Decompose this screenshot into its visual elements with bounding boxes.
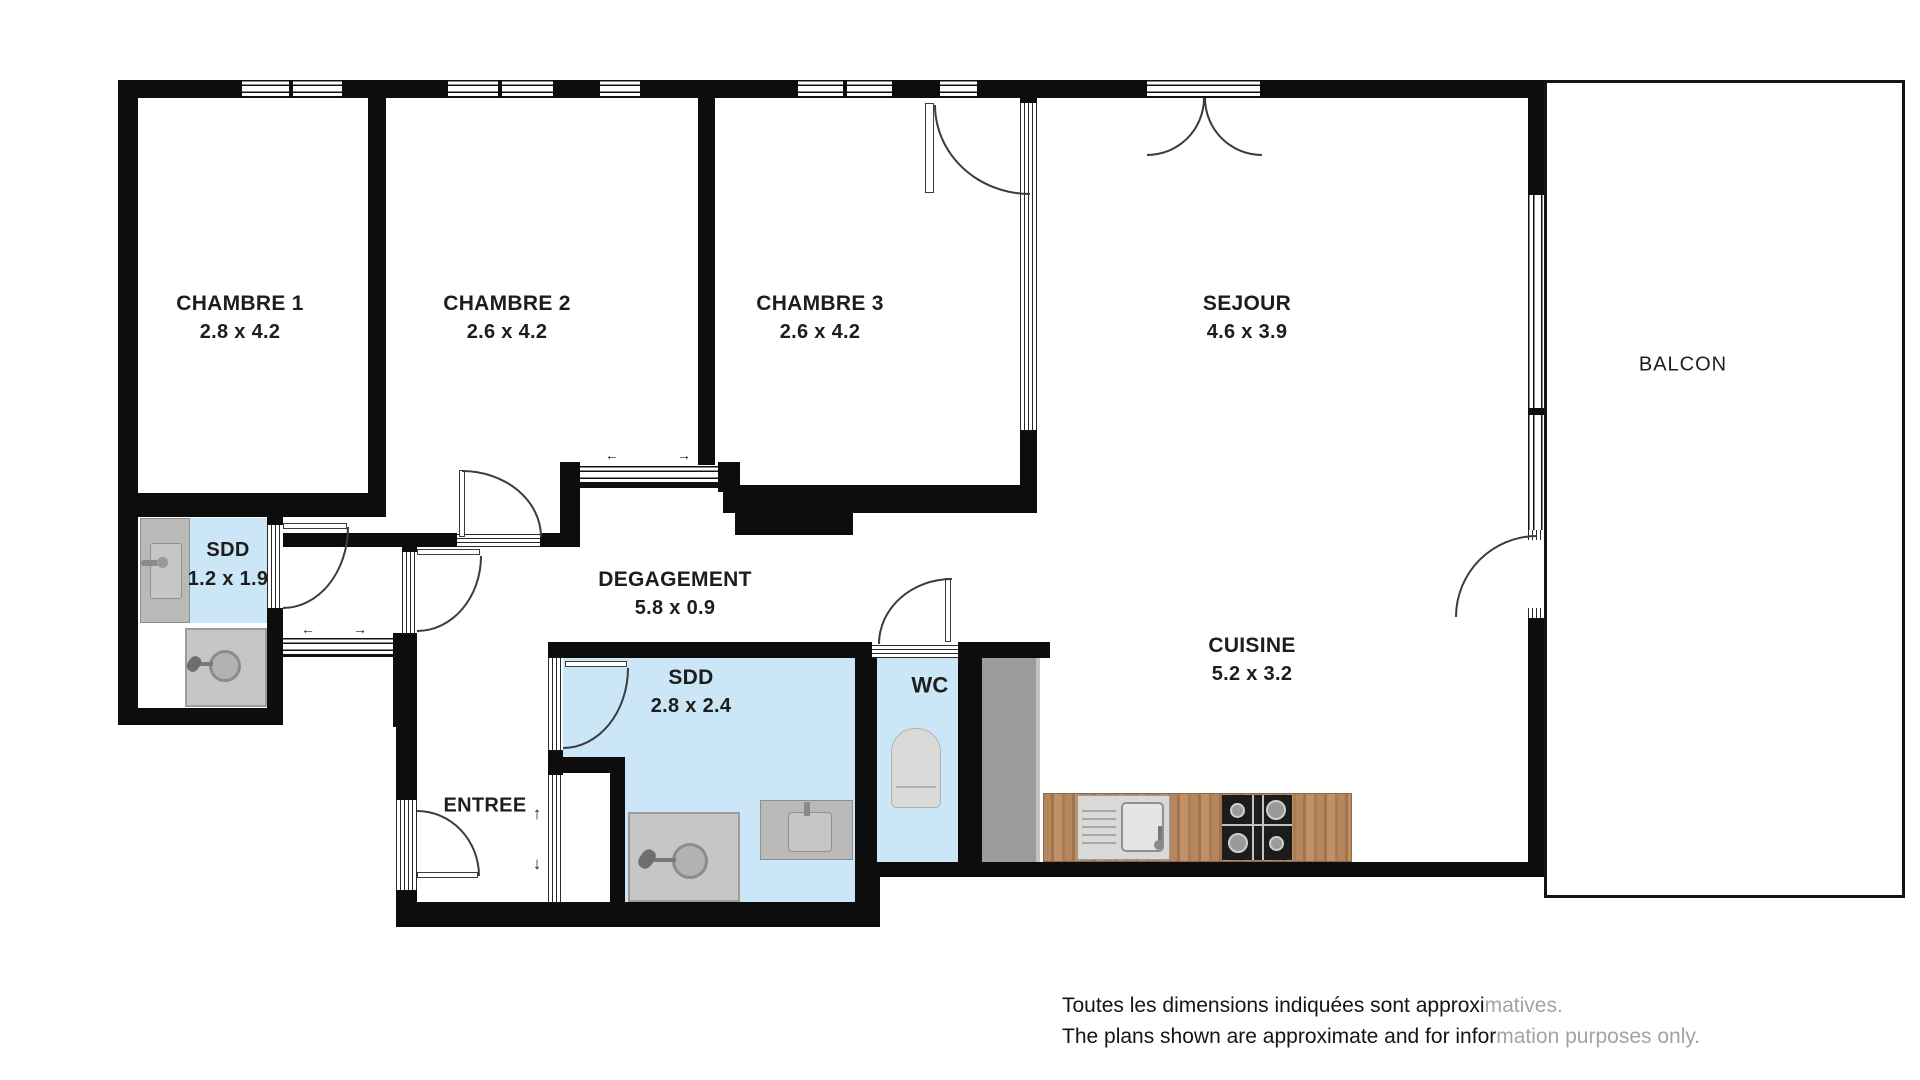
- floor-plan: ← → ← → ↑ ↓: [0, 0, 1920, 1080]
- stove-burner: [1230, 803, 1245, 818]
- sink-drainboard: [1082, 805, 1116, 850]
- room-label-entree: ENTREE: [444, 792, 527, 821]
- room-name: CUISINE: [1208, 631, 1295, 660]
- door-swing: [1455, 535, 1537, 617]
- slide-arrow-right-icon: →: [677, 447, 691, 463]
- room-name: SDD: [651, 663, 732, 692]
- wall: [396, 902, 880, 927]
- wall: [548, 642, 872, 658]
- door-swing: [1204, 98, 1262, 156]
- room-dims: 5.2 x 3.2: [1208, 660, 1295, 689]
- room-name: SDD: [188, 536, 269, 565]
- room-name: CHAMBRE 1: [176, 289, 304, 318]
- wall: [118, 493, 386, 517]
- wall: [560, 462, 580, 547]
- room-label-degagement: DEGAGEMENT 5.8 x 0.9: [598, 565, 752, 623]
- door-swing: [934, 105, 1030, 195]
- door-frame: [267, 525, 283, 608]
- slide-arrow-left-icon: ←: [301, 621, 315, 637]
- room-label-sdd-large: SDD 2.8 x 2.4: [651, 663, 732, 721]
- wall: [548, 750, 563, 775]
- room-label-cuisine: CUISINE 5.2 x 3.2: [1208, 631, 1295, 689]
- door-leaf: [417, 549, 480, 555]
- wall: [958, 658, 982, 862]
- shower-drain: [209, 650, 241, 682]
- window-mullion: [289, 80, 293, 98]
- room-label-sejour: SEJOUR 4.6 x 3.9: [1203, 289, 1291, 347]
- room-name: CHAMBRE 2: [443, 289, 571, 318]
- room-name: DEGAGEMENT: [598, 565, 752, 594]
- disclaimer-text: Toutes les dimensions indiquées sont app…: [1062, 990, 1700, 1052]
- stove-burner: [1269, 836, 1284, 851]
- wall: [698, 98, 715, 465]
- room-dims: 5.8 x 0.9: [598, 594, 752, 623]
- window-mullion: [843, 80, 847, 98]
- toilet-seat-line: [896, 786, 936, 788]
- stove-grate: [1222, 824, 1292, 826]
- sliding-door: [580, 466, 718, 488]
- room-dims: 4.6 x 3.9: [1203, 318, 1291, 347]
- disclaimer-line1: Toutes les dimensions indiquées sont app…: [1062, 990, 1700, 1021]
- entry-arrow-up-icon: ↑: [533, 804, 542, 824]
- door-swing: [1147, 98, 1205, 156]
- stove-grate: [1252, 795, 1254, 860]
- door-swing: [283, 527, 349, 609]
- wall: [118, 80, 138, 725]
- room-label-chambre1: CHAMBRE 1 2.8 x 4.2: [176, 289, 304, 347]
- sliding-window: [283, 638, 393, 657]
- disclaimer-line2: The plans shown are approximate and for …: [1062, 1021, 1700, 1052]
- french-door-sill: [1147, 80, 1260, 98]
- faucet-icon: [1154, 840, 1164, 850]
- door-leaf: [565, 661, 627, 667]
- stove-burner: [1266, 800, 1286, 820]
- wall: [855, 658, 877, 862]
- slide-arrow-right-icon: →: [353, 621, 367, 637]
- room-dims: 1.2 x 1.9: [188, 565, 269, 594]
- window: [940, 80, 977, 98]
- wall: [723, 485, 1037, 513]
- wall: [958, 642, 1050, 658]
- glazed-partition: [1020, 195, 1037, 430]
- sink-basin: [150, 543, 182, 599]
- watermark-text: matives.: [1485, 994, 1563, 1017]
- wall: [610, 773, 625, 903]
- door-frame: [548, 658, 563, 750]
- glazed-partition: [548, 775, 562, 902]
- room-name: CHAMBRE 3: [756, 289, 884, 318]
- room-label-chambre2: CHAMBRE 2 2.6 x 4.2: [443, 289, 571, 347]
- room-label-balcon: BALCON: [1639, 351, 1727, 380]
- watermark-text: mation purposes only.: [1496, 1025, 1700, 1048]
- room-label-sdd-small: SDD 1.2 x 1.9: [188, 536, 269, 594]
- window-mullion: [498, 80, 502, 98]
- shower-drain: [672, 843, 708, 879]
- room-name: WC: [911, 671, 948, 700]
- sink-basin: [788, 812, 832, 852]
- wall: [563, 757, 627, 773]
- wall: [118, 708, 283, 725]
- room-label-chambre3: CHAMBRE 3 2.6 x 4.2: [756, 289, 884, 347]
- room-label-wc: WC: [911, 671, 948, 700]
- wall: [862, 862, 1548, 877]
- room-dims: 2.8 x 2.4: [651, 692, 732, 721]
- faucet-icon: [804, 802, 810, 816]
- room-dims: 2.8 x 4.2: [176, 318, 304, 347]
- door-leaf: [925, 103, 934, 193]
- window: [600, 80, 640, 98]
- door-frame: [872, 642, 958, 658]
- stove-grate: [1262, 795, 1264, 860]
- door-swing: [417, 556, 482, 632]
- closet-block: [982, 658, 1040, 862]
- faucet-icon: [157, 557, 168, 568]
- door-frame: [402, 552, 417, 633]
- room-dims: 2.6 x 4.2: [443, 318, 571, 347]
- door-swing: [878, 578, 952, 644]
- room-name: BALCON: [1639, 351, 1727, 380]
- stove-burner: [1228, 833, 1248, 853]
- wall: [735, 513, 853, 535]
- wall: [368, 98, 386, 517]
- slide-arrow-left-icon: ←: [605, 447, 619, 463]
- toilet-icon: [891, 728, 941, 808]
- room-dims: 2.6 x 4.2: [756, 318, 884, 347]
- entry-door-frame: [396, 800, 417, 890]
- door-swing: [462, 470, 542, 537]
- room-name: SEJOUR: [1203, 289, 1291, 318]
- entry-arrow-down-icon: ↓: [533, 854, 542, 874]
- balcony-outline: [1544, 80, 1905, 898]
- room-name: ENTREE: [444, 792, 527, 821]
- closet-edge: [1036, 658, 1040, 862]
